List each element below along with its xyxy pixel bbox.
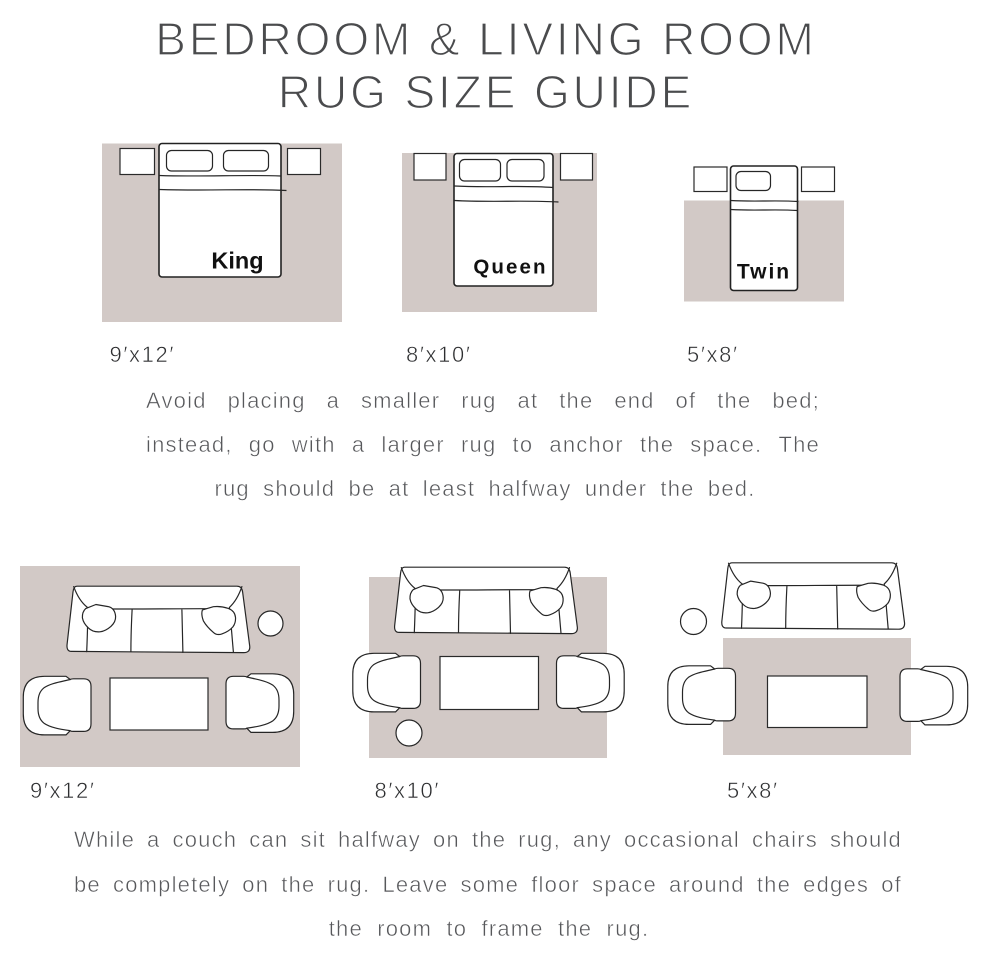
svg-text:Queen: Queen: [473, 256, 547, 279]
svg-text:Twin: Twin: [737, 261, 791, 284]
svg-text:King: King: [211, 248, 263, 274]
